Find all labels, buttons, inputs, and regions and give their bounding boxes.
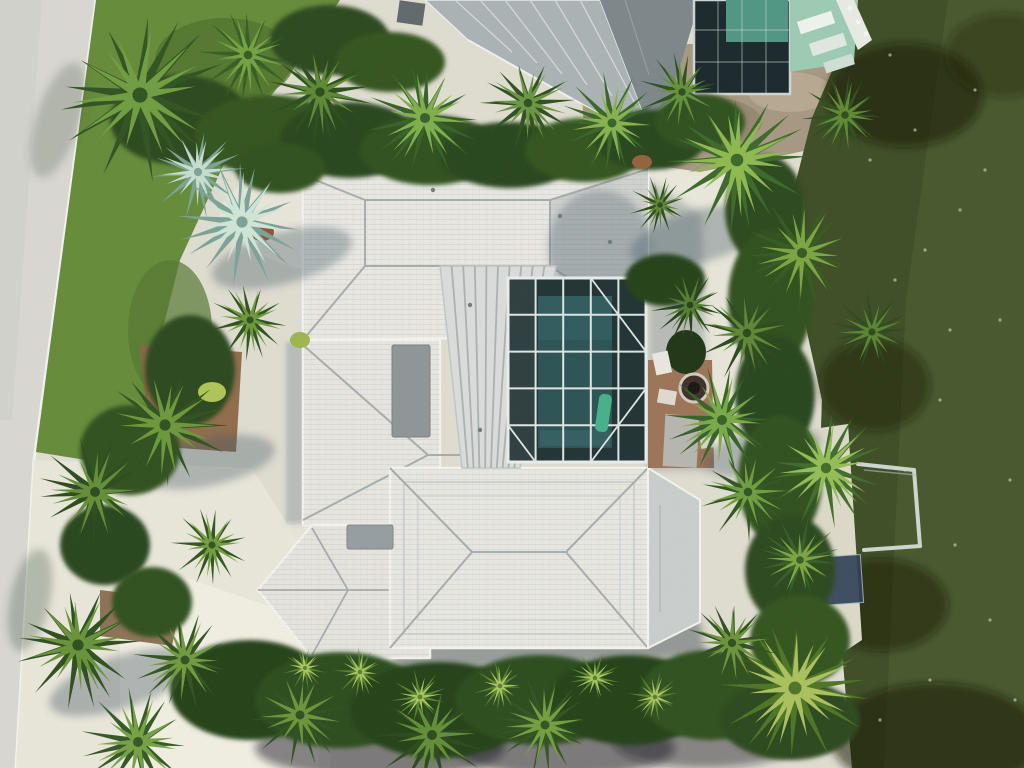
- photo-grain: [0, 0, 1024, 768]
- scene-svg: [0, 0, 1024, 768]
- scene-layers: [0, 0, 1024, 768]
- aerial-photo: [0, 0, 1024, 768]
